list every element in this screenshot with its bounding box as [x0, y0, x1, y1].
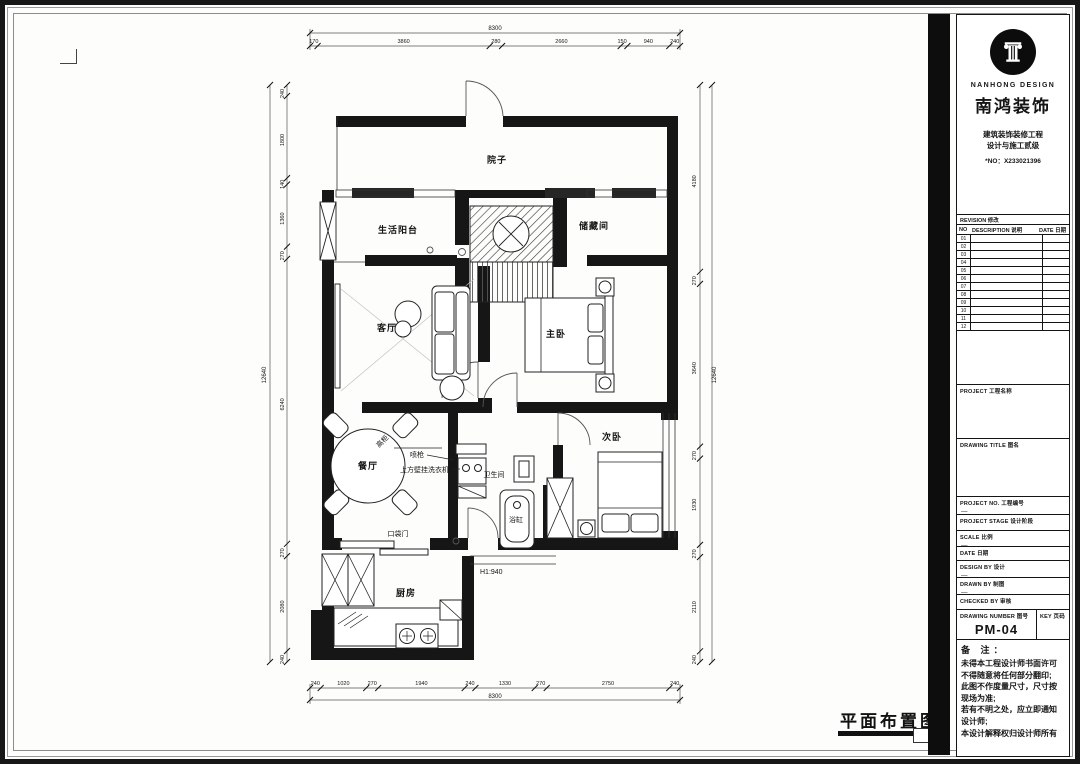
- svg-text:240: 240: [670, 39, 679, 45]
- company-name-cn: 南鸿装饰: [975, 92, 1051, 117]
- project-no-section: PROJECT NO. 工程编号 —: [957, 497, 1069, 515]
- company-header: NANHONG DESIGN 南鸿装饰 建筑装饰装修工程 设计与施工贰级 *NO…: [957, 15, 1069, 215]
- side-table: [440, 376, 464, 400]
- svg-text:240: 240: [311, 681, 320, 687]
- label-wall-height: H1:940: [480, 569, 503, 576]
- revision-row: 01: [957, 235, 1069, 243]
- checked-by-section: CHECKED BY 审核: [957, 595, 1069, 610]
- revision-row: 08: [957, 291, 1069, 299]
- room-label-master-bedroom: 主卧: [546, 328, 566, 339]
- svg-text:270: 270: [692, 276, 698, 285]
- company-name-en: NANHONG DESIGN: [971, 82, 1056, 89]
- svg-text:3640: 3640: [692, 362, 698, 374]
- room-label-courtyard: 院子: [487, 154, 507, 165]
- heater-shaft: [470, 206, 553, 302]
- kitchen-group: [322, 541, 462, 648]
- svg-text:1930: 1930: [692, 499, 698, 511]
- floor-plan-canvas: 院子 生活阳台 储藏间 客厅 主卧 次卧 餐厅 卫生间 厨房 浴缸 高柜 喷枪 …: [5, 5, 935, 759]
- scale-section: SCALE 比例 —: [957, 531, 1069, 547]
- svg-text:1800: 1800: [280, 134, 286, 146]
- label-bathtub: 浴缸: [509, 515, 523, 524]
- revision-table: REVISION 修改 NO DESCRIPTION 说明 DATE 日期 01…: [957, 215, 1069, 331]
- revision-header: REVISION 修改: [957, 215, 1069, 225]
- tv-panel: [335, 284, 340, 388]
- dim-top-total: 8300: [488, 26, 502, 32]
- svg-text:150: 150: [618, 39, 627, 45]
- svg-text:1330: 1330: [499, 681, 511, 687]
- svg-text:2110: 2110: [692, 601, 698, 613]
- svg-text:280: 280: [491, 39, 500, 45]
- svg-text:1940: 1940: [415, 681, 427, 687]
- svg-text:270: 270: [692, 549, 698, 558]
- project-section: PROJECT 工程名称: [957, 385, 1069, 439]
- photo-frame: 院子 生活阳台 储藏间 客厅 主卧 次卧 餐厅 卫生间 厨房 浴缸 高柜 喷枪 …: [0, 0, 1080, 764]
- room-label-storage: 储藏间: [579, 220, 609, 231]
- pocket-door-panel: [380, 549, 428, 555]
- remarks-section: 备 注： 未得本工程设计师书面许可 不得随意将任何部分翻印; 此图不作度量尺寸，…: [957, 640, 1069, 756]
- room-label-living-room: 客厅: [376, 322, 397, 333]
- divider-bar: [928, 14, 950, 755]
- drawing-number: PM-04: [957, 620, 1036, 639]
- svg-text:240: 240: [692, 655, 698, 664]
- wall-cabinet: [456, 444, 486, 454]
- svg-text:240: 240: [670, 681, 679, 687]
- project-stage-section: PROJECT STAGE 设计阶段: [957, 515, 1069, 531]
- svg-text:1360: 1360: [280, 212, 286, 224]
- drawing-sheet: 院子 生活阳台 储藏间 客厅 主卧 次卧 餐厅 卫生间 厨房 浴缸 高柜 喷枪 …: [5, 5, 1075, 759]
- revision-row: 10: [957, 307, 1069, 315]
- room-label-living-balcony: 生活阳台: [378, 224, 418, 235]
- drawing-title-section: DRAWING TITLE 图名: [957, 439, 1069, 497]
- svg-text:6240: 6240: [280, 398, 286, 410]
- svg-text:270: 270: [368, 681, 377, 687]
- company-cert-no: *NO：X233021396: [985, 155, 1041, 165]
- dim-right-total: 12640: [712, 366, 718, 383]
- design-by-section: DESIGN BY 设计 —: [957, 561, 1069, 578]
- company-logo: [990, 29, 1036, 75]
- chair: [391, 411, 420, 440]
- mop-sink: [458, 458, 486, 484]
- revision-row: 05: [957, 267, 1069, 275]
- living-room-furniture: [341, 279, 474, 400]
- title-block: NANHONG DESIGN 南鸿装饰 建筑装饰装修工程 设计与施工贰级 *NO…: [956, 14, 1070, 757]
- pillow: [602, 514, 629, 532]
- svg-text:2080: 2080: [280, 600, 286, 612]
- drawn-by-section: DRAWN BY 制图 —: [957, 578, 1069, 595]
- svg-text:940: 940: [644, 39, 653, 45]
- room-label-second-bedroom: 次卧: [602, 431, 622, 442]
- svg-text:2660: 2660: [555, 39, 567, 45]
- pillow: [588, 336, 603, 364]
- pillow: [588, 304, 603, 332]
- svg-text:1020: 1020: [337, 681, 349, 687]
- revision-row: 12: [957, 323, 1069, 330]
- drawing-number-section: DRAWING NUMBER 图号 PM-04 KEY 页码: [957, 610, 1069, 640]
- revision-row: 02: [957, 243, 1069, 251]
- svg-text:2750: 2750: [602, 681, 614, 687]
- svg-text:240: 240: [280, 655, 286, 664]
- svg-text:270: 270: [692, 451, 698, 460]
- label-wall-washer: 上方壁挂洗衣机: [400, 465, 449, 474]
- svg-text:270: 270: [536, 681, 545, 687]
- svg-text:270: 270: [280, 251, 286, 260]
- second-bed-group: [547, 452, 662, 538]
- label-spray-gun: 喷枪: [410, 450, 424, 459]
- revision-row: 11: [957, 315, 1069, 323]
- svg-text:3860: 3860: [397, 39, 409, 45]
- svg-text:4180: 4180: [692, 175, 698, 187]
- dim-bottom-total: 8300: [488, 694, 502, 700]
- room-label-bathroom: 卫生间: [484, 470, 505, 479]
- column-logo-icon: [998, 37, 1028, 67]
- svg-text:170: 170: [309, 39, 318, 45]
- date-section: DATE 日期: [957, 547, 1069, 561]
- svg-text:240: 240: [465, 681, 474, 687]
- pillow: [631, 514, 658, 532]
- revision-row: 03: [957, 251, 1069, 259]
- notes-box: [957, 331, 1069, 385]
- company-cert: 建筑装饰装修工程 设计与施工贰级: [983, 129, 1043, 152]
- revision-row: 09: [957, 299, 1069, 307]
- pocket-door-panel: [340, 541, 394, 548]
- room-label-dining-room: 餐厅: [357, 460, 378, 471]
- svg-text:240: 240: [280, 89, 286, 98]
- svg-text:270: 270: [280, 548, 286, 557]
- revision-columns: NO DESCRIPTION 说明 DATE 日期: [957, 225, 1069, 235]
- label-pocket-door: 口袋门: [388, 529, 409, 538]
- dim-left-total: 12640: [262, 366, 268, 383]
- revision-row: 07: [957, 283, 1069, 291]
- revision-row: 04: [957, 259, 1069, 267]
- svg-text:140: 140: [280, 180, 286, 189]
- revision-row: 06: [957, 275, 1069, 283]
- room-label-kitchen: 厨房: [396, 587, 416, 598]
- dining-group: [321, 411, 460, 517]
